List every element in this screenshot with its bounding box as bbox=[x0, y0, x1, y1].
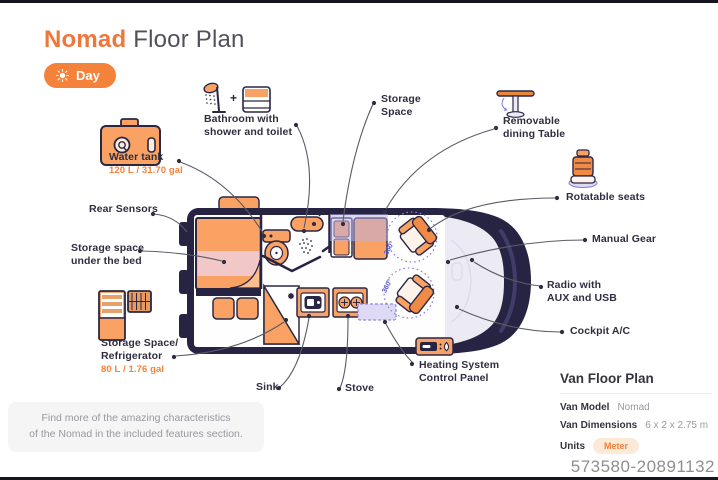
cockpit-ac-line1: Cockpit A/C bbox=[570, 325, 630, 337]
rotation-360-top: 360° bbox=[382, 240, 396, 257]
callout-line-radio bbox=[474, 262, 540, 286]
callout-label-rotatable-seats: Rotatable seats bbox=[566, 191, 645, 204]
page-title-rest: Floor Plan bbox=[133, 26, 244, 53]
callout-label-heating: Heating System Control Panel bbox=[419, 359, 499, 385]
callout-line-bathroom bbox=[297, 126, 310, 228]
water-tank-line1: Water tank bbox=[109, 151, 163, 163]
van-body bbox=[187, 208, 531, 354]
radio-line2: AUX and USB bbox=[547, 292, 617, 304]
page-title: Nomad Floor Plan bbox=[44, 26, 245, 54]
nose-highlight bbox=[501, 231, 515, 331]
units-label: Units bbox=[560, 441, 585, 452]
callout-label-radio: Radio with AUX and USB bbox=[547, 279, 617, 305]
refrigerator-line2: Refrigerator bbox=[101, 350, 162, 362]
cab-seat-top bbox=[396, 213, 440, 258]
van-bed bbox=[196, 218, 261, 289]
features-note: Find more of the amazing characteristics… bbox=[8, 402, 264, 452]
callout-label-dining-table: Removable dining Table bbox=[503, 115, 565, 141]
heating-zone bbox=[358, 304, 396, 320]
day-mode-label: Day bbox=[76, 68, 100, 83]
callout-line-heating bbox=[386, 324, 413, 363]
callout-label-bathroom: Bathroom with shower and toilet bbox=[204, 113, 292, 139]
top-edge-bar bbox=[0, 0, 718, 3]
units-meter-badge[interactable]: Meter bbox=[593, 438, 639, 454]
storage-space-line1: Storage bbox=[381, 93, 421, 105]
under-bed-cushions bbox=[213, 298, 258, 319]
van-dimensions-value: 6 x 2 x 2.75 m bbox=[645, 420, 708, 431]
bathroom-line1: Bathroom with bbox=[204, 113, 279, 125]
rotatable-seats-line1: Rotatable seats bbox=[566, 191, 645, 203]
refrigerator-value: 80 L / 1.76 gal bbox=[101, 364, 178, 376]
dining-table-line2: dining Table bbox=[503, 128, 565, 140]
console bbox=[452, 263, 462, 280]
callout-label-storage-under-bed: Storage space under the bed bbox=[71, 242, 144, 268]
features-note-line1: Find more of the amazing characteristics bbox=[41, 411, 230, 427]
features-note-line2: of the Nomad in the included features se… bbox=[29, 427, 243, 443]
callout-line-manual-gear bbox=[450, 240, 584, 260]
dining-bench bbox=[331, 218, 352, 257]
seat-rotation-circle-top bbox=[387, 212, 437, 262]
info-row-model: Van Model Nomad bbox=[560, 402, 712, 413]
shower-icon bbox=[203, 82, 225, 112]
manual-gear-line1: Manual Gear bbox=[592, 233, 656, 245]
bathroom-line2: shower and toilet bbox=[204, 126, 292, 138]
toilet-icon bbox=[243, 87, 270, 112]
callout-line-refrigerator bbox=[175, 322, 284, 356]
callout-label-rear-sensors: Rear Sensors bbox=[89, 203, 158, 216]
van-model-label: Van Model bbox=[560, 402, 609, 413]
dashboard-line bbox=[451, 240, 471, 322]
refrigerator-icon bbox=[99, 291, 151, 340]
dining-table-line1: Removable bbox=[503, 115, 560, 127]
corner-cabinet bbox=[264, 286, 299, 344]
info-divider bbox=[560, 393, 712, 394]
callout-line-storage-under-bed bbox=[141, 251, 222, 261]
sink-line1: Sink bbox=[256, 381, 279, 393]
day-mode-toggle[interactable]: Day bbox=[44, 63, 116, 88]
storage-under-bed-line1: Storage space bbox=[71, 242, 144, 254]
callout-line-sink bbox=[280, 318, 309, 387]
rotation-360-bottom: 360° bbox=[380, 278, 394, 295]
fan-icon bbox=[288, 293, 294, 299]
water-tank-value: 120 L / 31.70 gal bbox=[109, 165, 183, 177]
shower-spray bbox=[299, 238, 313, 254]
van-model-value: Nomad bbox=[617, 402, 649, 413]
heating-panel-icon bbox=[416, 338, 453, 355]
toilet bbox=[263, 230, 290, 265]
plus-glyph: + bbox=[230, 91, 237, 105]
heating-line1: Heating System bbox=[419, 359, 499, 371]
overhead-storage-overlay bbox=[330, 214, 388, 241]
callout-label-sink: Sink bbox=[256, 381, 279, 394]
nomad-floor-plan-page: Nomad Floor Plan Day bbox=[0, 0, 718, 480]
callout-label-manual-gear: Manual Gear bbox=[592, 233, 656, 246]
dining-table-top bbox=[354, 218, 387, 259]
rotatable-seat-icon bbox=[569, 150, 597, 188]
info-row-dimensions: Van Dimensions 6 x 2 x 2.75 m bbox=[560, 420, 712, 431]
callout-label-storage-space: Storage Space bbox=[381, 93, 421, 119]
seat-rotation-circle-bottom bbox=[384, 268, 434, 318]
refrigerator-line1: Storage Space/ bbox=[101, 337, 178, 349]
van-info-panel: Van Floor Plan Van Model Nomad Van Dimen… bbox=[560, 371, 712, 461]
callout-line-stove bbox=[340, 318, 348, 388]
page-title-accent: Nomad bbox=[44, 26, 126, 53]
bed-base-band bbox=[196, 288, 261, 296]
windshield bbox=[445, 217, 504, 345]
callout-line-storage-space bbox=[343, 104, 373, 221]
callout-label-cockpit-ac: Cockpit A/C bbox=[570, 325, 630, 338]
callout-label-stove: Stove bbox=[345, 382, 374, 395]
callout-label-water-tank: Water tank 120 L / 31.70 gal bbox=[109, 151, 183, 176]
callout-label-refrigerator: Storage Space/ Refrigerator 80 L / 1.76 … bbox=[101, 337, 178, 375]
sink-unit bbox=[297, 288, 329, 317]
callout-line-rotatable-seats bbox=[431, 198, 556, 228]
cab-seat-bottom bbox=[393, 272, 437, 317]
callout-line-cockpit-ac bbox=[459, 309, 561, 332]
dining-table-icon bbox=[497, 91, 534, 117]
info-row-units: Units Meter bbox=[560, 438, 712, 454]
heating-line2: Control Panel bbox=[419, 372, 489, 384]
stove-unit bbox=[333, 288, 367, 317]
van-dimensions-label: Van Dimensions bbox=[560, 420, 637, 431]
sun-icon bbox=[56, 69, 69, 82]
rear-sensors-line1: Rear Sensors bbox=[89, 203, 158, 215]
van-info-title: Van Floor Plan bbox=[560, 371, 712, 386]
folding-door bbox=[263, 241, 337, 271]
callout-line-water-tank bbox=[180, 162, 263, 233]
callout-line-rear-sensors bbox=[154, 214, 187, 232]
bed-pink-band bbox=[198, 251, 260, 276]
watermark-number: 573580-20891132 bbox=[571, 457, 715, 477]
stove-line1: Stove bbox=[345, 382, 374, 394]
radio-line1: Radio with bbox=[547, 279, 601, 291]
roof-storage-tab bbox=[219, 197, 259, 211]
rear-sensor-tabs bbox=[179, 222, 189, 338]
bathroom-sink-counter bbox=[291, 212, 326, 231]
van-interior-floor bbox=[194, 215, 445, 347]
callout-lines bbox=[141, 104, 584, 388]
callout-dots bbox=[138, 101, 587, 391]
storage-space-line2: Space bbox=[381, 106, 412, 118]
callout-line-dining-table bbox=[386, 129, 494, 209]
storage-under-bed-line2: under the bed bbox=[71, 255, 142, 267]
